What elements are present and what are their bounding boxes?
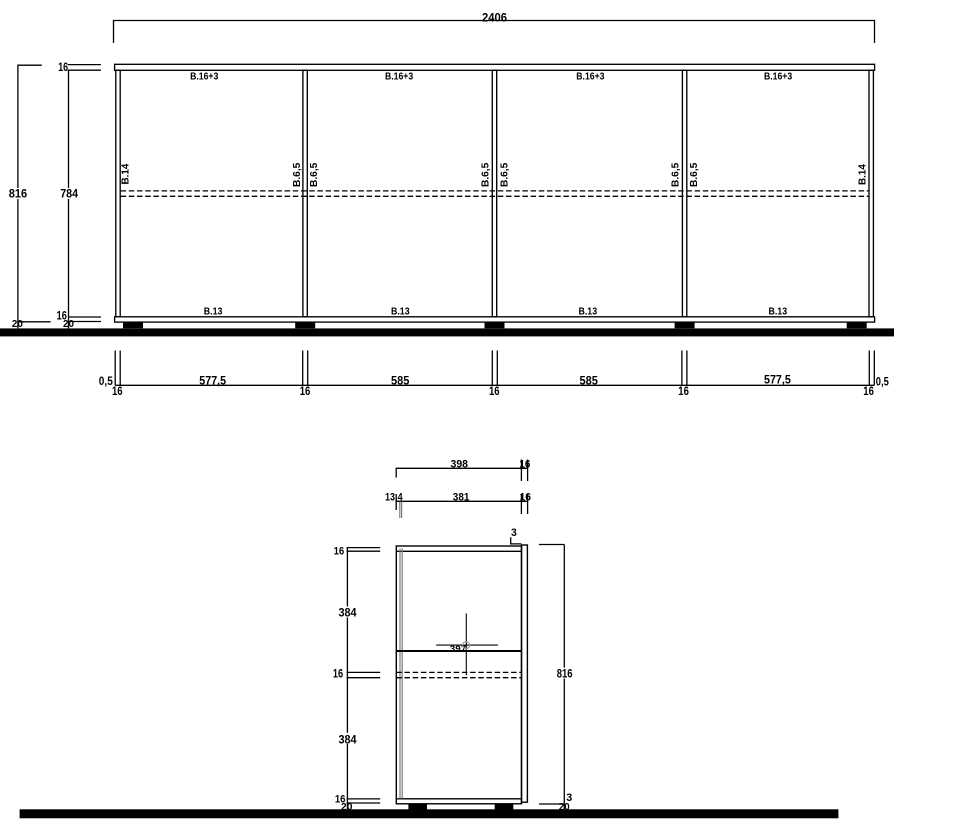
- svg-text:397: 397: [450, 644, 466, 655]
- svg-text:577,5: 577,5: [199, 373, 226, 387]
- svg-text:3: 3: [511, 527, 517, 539]
- svg-text:B.6,5: B.6,5: [309, 162, 320, 187]
- svg-text:B.16+3: B.16+3: [385, 72, 414, 83]
- svg-text:B.6,5: B.6,5: [292, 162, 303, 187]
- svg-text:B.6,5: B.6,5: [481, 162, 492, 187]
- svg-text:585: 585: [391, 374, 410, 388]
- svg-text:B.13: B.13: [204, 306, 223, 317]
- svg-text:B.16+3: B.16+3: [576, 72, 605, 83]
- svg-text:384: 384: [339, 733, 357, 747]
- svg-text:381: 381: [453, 492, 470, 504]
- svg-text:816: 816: [557, 666, 573, 680]
- svg-text:B.16+3: B.16+3: [764, 72, 793, 83]
- svg-text:B.6,5: B.6,5: [500, 162, 511, 187]
- svg-text:B.14: B.14: [120, 163, 131, 184]
- svg-text:B.6,5: B.6,5: [689, 162, 700, 187]
- svg-text:585: 585: [580, 374, 599, 388]
- svg-text:16: 16: [519, 459, 530, 471]
- svg-text:784: 784: [60, 187, 78, 201]
- svg-text:16: 16: [863, 384, 874, 398]
- svg-text:384: 384: [339, 605, 357, 619]
- svg-text:16: 16: [300, 384, 311, 398]
- svg-text:16: 16: [520, 492, 531, 504]
- svg-text:B.14: B.14: [858, 164, 869, 185]
- svg-text:16: 16: [112, 384, 123, 398]
- svg-text:16: 16: [334, 545, 345, 557]
- svg-text:2406: 2406: [482, 11, 507, 25]
- svg-text:16: 16: [489, 384, 500, 398]
- svg-text:B.13: B.13: [391, 306, 410, 317]
- svg-text:B.13: B.13: [769, 306, 788, 317]
- svg-text:16: 16: [333, 666, 343, 680]
- svg-text:16: 16: [678, 384, 689, 398]
- svg-text:13,4: 13,4: [385, 492, 403, 504]
- svg-text:0,5: 0,5: [99, 374, 113, 388]
- svg-text:398: 398: [451, 459, 469, 471]
- svg-text:0,5: 0,5: [876, 375, 889, 389]
- svg-text:B.16+3: B.16+3: [190, 72, 219, 83]
- svg-text:577,5: 577,5: [764, 373, 791, 387]
- svg-text:B.13: B.13: [579, 306, 598, 317]
- svg-text:20: 20: [12, 319, 23, 330]
- svg-text:16: 16: [58, 60, 68, 74]
- svg-text:B.6,5: B.6,5: [670, 162, 681, 187]
- svg-text:816: 816: [9, 187, 28, 201]
- svg-text:20: 20: [63, 319, 74, 330]
